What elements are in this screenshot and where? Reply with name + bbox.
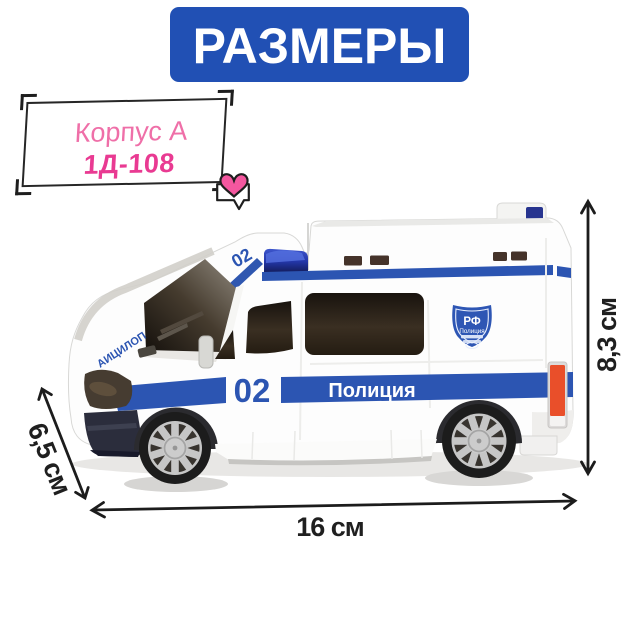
svg-text:Полиция: Полиция [328, 380, 415, 402]
svg-text:8,3 см: 8,3 см [592, 298, 622, 372]
svg-text:Полиция: Полиция [459, 328, 484, 335]
svg-text:16 см: 16 см [296, 512, 364, 542]
svg-text:02: 02 [234, 372, 271, 409]
svg-text:РФ: РФ [463, 316, 481, 328]
